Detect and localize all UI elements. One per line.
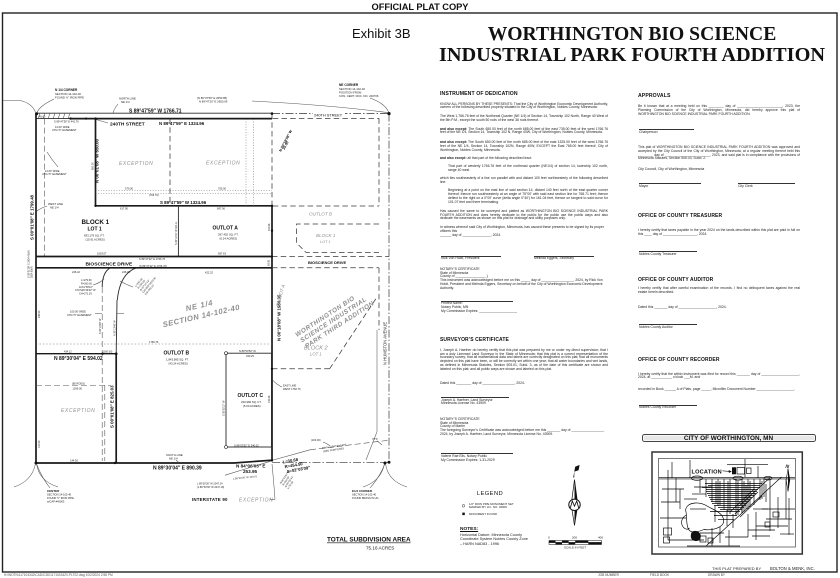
svg-text:N 89°30′04″ E 594.02: N 89°30′04″ E 594.02	[54, 356, 103, 362]
svg-text:SECTION 14-102-40: SECTION 14-102-40	[47, 493, 72, 497]
svg-text:WEST 1766.76: WEST 1766.76	[283, 387, 301, 391]
svg-text:S 89°47′59″ W 1766.71: S 89°47′59″ W 1766.71	[129, 109, 182, 115]
svg-text:FOUND ½″ IRON PIPE: FOUND ½″ IRON PIPE	[47, 496, 74, 500]
svg-text:1.89°30′30″ W 100.01: 1.89°30′30″ W 100.01	[233, 475, 258, 481]
svg-text:(160.00): (160.00)	[103, 350, 112, 353]
svg-text:EXCEPTION: EXCEPTION	[61, 408, 95, 414]
svg-text:NE 1/4: NE 1/4	[50, 206, 59, 210]
svg-text:S 00°02′17″ W: S 00°02′17″ W	[223, 400, 226, 416]
svg-text:N 89°47′20″ E 2650.09: N 89°47′20″ E 2650.09	[199, 100, 228, 104]
svg-text:755.00: 755.00	[218, 186, 226, 190]
svg-text:EAST LINE: EAST LINE	[283, 384, 296, 388]
svg-text:N 00°12′01″ W 344.11: N 00°12′01″ W 344.11	[175, 221, 178, 245]
svg-text:400: 400	[598, 536, 603, 540]
svg-text:LOCATION: LOCATION	[692, 469, 722, 475]
svg-text:OUTLOT C: OUTLOT C	[238, 393, 264, 399]
svg-text:OUTLOT B: OUTLOT B	[309, 212, 332, 217]
svg-text:(43.24 ACRES): (43.24 ACRES)	[169, 362, 188, 366]
svg-text:144.50: 144.50	[38, 440, 41, 448]
svg-text:697.63: 697.63	[218, 252, 226, 256]
svg-text:CH=271.29: CH=271.29	[79, 293, 92, 296]
svg-text:SCIENCE INDUSTRIAL: SCIENCE INDUSTRIAL	[299, 296, 368, 344]
svg-text:CON. CERT. DOC. NO. 240706: CON. CERT. DOC. NO. 240706	[339, 94, 379, 98]
svg-text:FOUND BRASS PLUG: FOUND BRASS PLUG	[352, 496, 379, 500]
svg-text:FOUND ½″ IRON PIPE: FOUND ½″ IRON PIPE	[55, 96, 84, 100]
svg-text:(1.89°30′30″ W 2047.19): (1.89°30′30″ W 2047.19)	[197, 486, 224, 489]
svg-text:INTERSTATE 90: INTERSTATE 90	[192, 497, 228, 502]
svg-text:SCALE IN FEET: SCALE IN FEET	[564, 546, 586, 550]
svg-text:422.32: 422.32	[205, 270, 213, 274]
svg-text:EXCEPTION: EXCEPTION	[119, 161, 153, 167]
svg-text:OUTLOT A: OUTLOT A	[213, 226, 239, 232]
svg-text:BIOSCIENCE DRIVE: BIOSCIENCE DRIVE	[86, 261, 133, 267]
svg-text:570.00: 570.00	[125, 186, 133, 190]
svg-text:S 89°47′59″ W 1324.96: S 89°47′59″ W 1324.96	[160, 200, 207, 205]
svg-text:UTILITY EASEMENT: UTILITY EASEMENT	[52, 128, 77, 132]
svg-text:50.00: 50.00	[268, 259, 271, 266]
svg-text:246.42: 246.42	[72, 270, 80, 274]
svg-text:N 89°53′52″ W: N 89°53′52″ W	[239, 349, 256, 353]
svg-text:70°0′: 70°0′	[372, 437, 378, 441]
svg-text:236.53: 236.53	[38, 310, 41, 318]
svg-text:TOTAL SUBDIVISION AREA: TOTAL SUBDIVISION AREA	[327, 537, 411, 544]
svg-text:240TH STREET: 240TH STREET	[110, 122, 145, 128]
svg-text:(S 89°47′42″ E 1766.70): (S 89°47′42″ E 1766.70)	[139, 264, 167, 268]
svg-text:340.25: 340.25	[246, 354, 254, 358]
svg-text:(6.24 ACRES): (6.24 ACRES)	[220, 237, 238, 241]
svg-text:CENTER: CENTER	[47, 489, 60, 493]
svg-text:NE 1/4: NE 1/4	[121, 100, 130, 104]
svg-text:NE 1/4: NE 1/4	[169, 457, 178, 461]
svg-text:LOT 1: LOT 1	[310, 352, 322, 357]
svg-text:(80 RODS): (80 RODS)	[72, 381, 85, 385]
svg-text:BIOSCIENCE DRIVE: BIOSCIENCE DRIVE	[308, 260, 347, 265]
svg-text:617.90: 617.90	[120, 207, 128, 211]
svg-text:N 89°47′59″ E 1324.96: N 89°47′59″ E 1324.96	[159, 121, 205, 126]
svg-text:S 00°13′48″ W: S 00°13′48″ W	[99, 318, 102, 334]
svg-text:697.06: 697.06	[217, 207, 225, 211]
svg-text:1766.76: 1766.76	[149, 340, 159, 344]
svg-text:SECTION 14-102-40: SECTION 14-102-40	[352, 493, 377, 497]
svg-text:BLOCK 1: BLOCK 1	[316, 233, 336, 238]
svg-text:(15.91 ACRES): (15.91 ACRES)	[86, 238, 105, 242]
svg-text:(5.60 ACRES): (5.60 ACRES)	[243, 404, 261, 408]
svg-text:S 89°53′52″ E 340.02: S 89°53′52″ E 340.02	[234, 443, 259, 447]
svg-text:434.12: 434.12	[64, 350, 72, 353]
svg-text:E1/4 CORNER: E1/4 CORNER	[352, 489, 373, 493]
svg-text:EXCEPTION: EXCEPTION	[206, 161, 240, 167]
svg-text:45.00: 45.00	[39, 116, 46, 119]
svg-text:253.95: 253.95	[243, 469, 257, 474]
svg-text:UTILITY EASEMENT: UTILITY EASEMENT	[42, 172, 67, 176]
svg-text:w/CAP #40063: w/CAP #40063	[47, 499, 65, 503]
svg-text:2624.63(R): 2624.63(R)	[31, 266, 34, 278]
svg-text:S 00°01′08″ E 1799.48: S 00°01′08″ E 1799.48	[30, 194, 35, 240]
svg-text:733.08: 733.08	[268, 395, 271, 403]
svg-text:200: 200	[572, 536, 577, 540]
svg-text:144.50: 144.50	[70, 458, 78, 462]
svg-text:N 00°01′08″ W 650.00: N 00°01′08″ W 650.00	[95, 138, 100, 183]
svg-text:OUTLOT B: OUTLOT B	[164, 351, 190, 357]
svg-text:75.16 ACRES: 75.16 ACRES	[366, 546, 394, 551]
svg-text:N 89°30′04″ E 890.39: N 89°30′04″ E 890.39	[153, 465, 202, 471]
svg-text:0: 0	[548, 536, 550, 540]
svg-text:650.00: 650.00	[92, 162, 95, 170]
svg-text:LOT 1: LOT 1	[88, 227, 102, 233]
svg-text:100.00′ WIDE: 100.00′ WIDE	[70, 310, 86, 314]
svg-text:EXCEPTION: EXCEPTION	[239, 498, 273, 504]
svg-text:1296.00: 1296.00	[73, 387, 83, 391]
svg-text:S 89°47′42″ E 1766.76: S 89°47′42″ E 1766.76	[139, 257, 166, 261]
svg-text:S 89°47′59″ E 441.76: S 89°47′59″ E 441.76	[54, 120, 79, 124]
svg-text:240TH STREET: 240TH STREET	[314, 112, 343, 117]
svg-text:1003.07: 1003.07	[97, 252, 107, 256]
svg-text:(100.00): (100.00)	[311, 438, 321, 442]
svg-text:UTILITY EASEMENT: UTILITY EASEMENT	[67, 313, 92, 317]
svg-text:BLOCK 1: BLOCK 1	[82, 219, 110, 226]
svg-text:LOT 1: LOT 1	[320, 240, 331, 244]
svg-text:N 00°13′48″ W: N 00°13′48″ W	[113, 320, 116, 336]
svg-text:344.68: 344.68	[268, 223, 271, 231]
svg-text:N HUMSTON AVENUE: N HUMSTON AVENUE	[383, 322, 388, 365]
svg-text:S 00°01′08″ E 825.03: S 00°01′08″ E 825.03	[109, 385, 114, 428]
